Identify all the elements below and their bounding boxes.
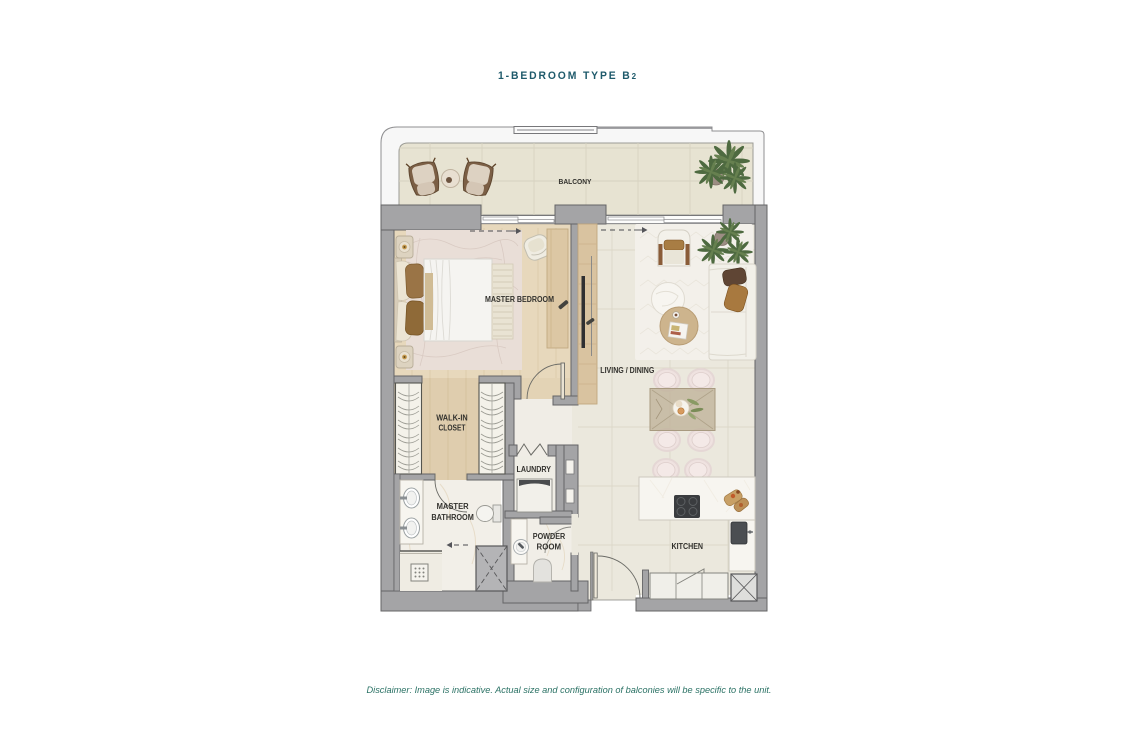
svg-text:WALK-IN: WALK-IN — [436, 414, 468, 423]
svg-text:BALCONY: BALCONY — [559, 177, 592, 186]
svg-text:1-BEDROOM TYPE B2: 1-BEDROOM TYPE B2 — [498, 70, 638, 82]
svg-text:KITCHEN: KITCHEN — [672, 542, 704, 551]
svg-text:BATHROOM: BATHROOM — [431, 513, 474, 522]
svg-text:MASTER: MASTER — [437, 502, 469, 511]
svg-text:Disclaimer: Image is indicativ: Disclaimer: Image is indicative. Actual … — [367, 684, 772, 695]
svg-text:LAUNDRY: LAUNDRY — [517, 465, 552, 474]
svg-text:MASTER BEDROOM: MASTER BEDROOM — [485, 295, 554, 304]
svg-text:LIVING / DINING: LIVING / DINING — [600, 366, 654, 375]
svg-text:POWDER: POWDER — [533, 532, 566, 541]
svg-text:ROOM: ROOM — [537, 543, 562, 552]
svg-text:CLOSET: CLOSET — [439, 424, 466, 433]
